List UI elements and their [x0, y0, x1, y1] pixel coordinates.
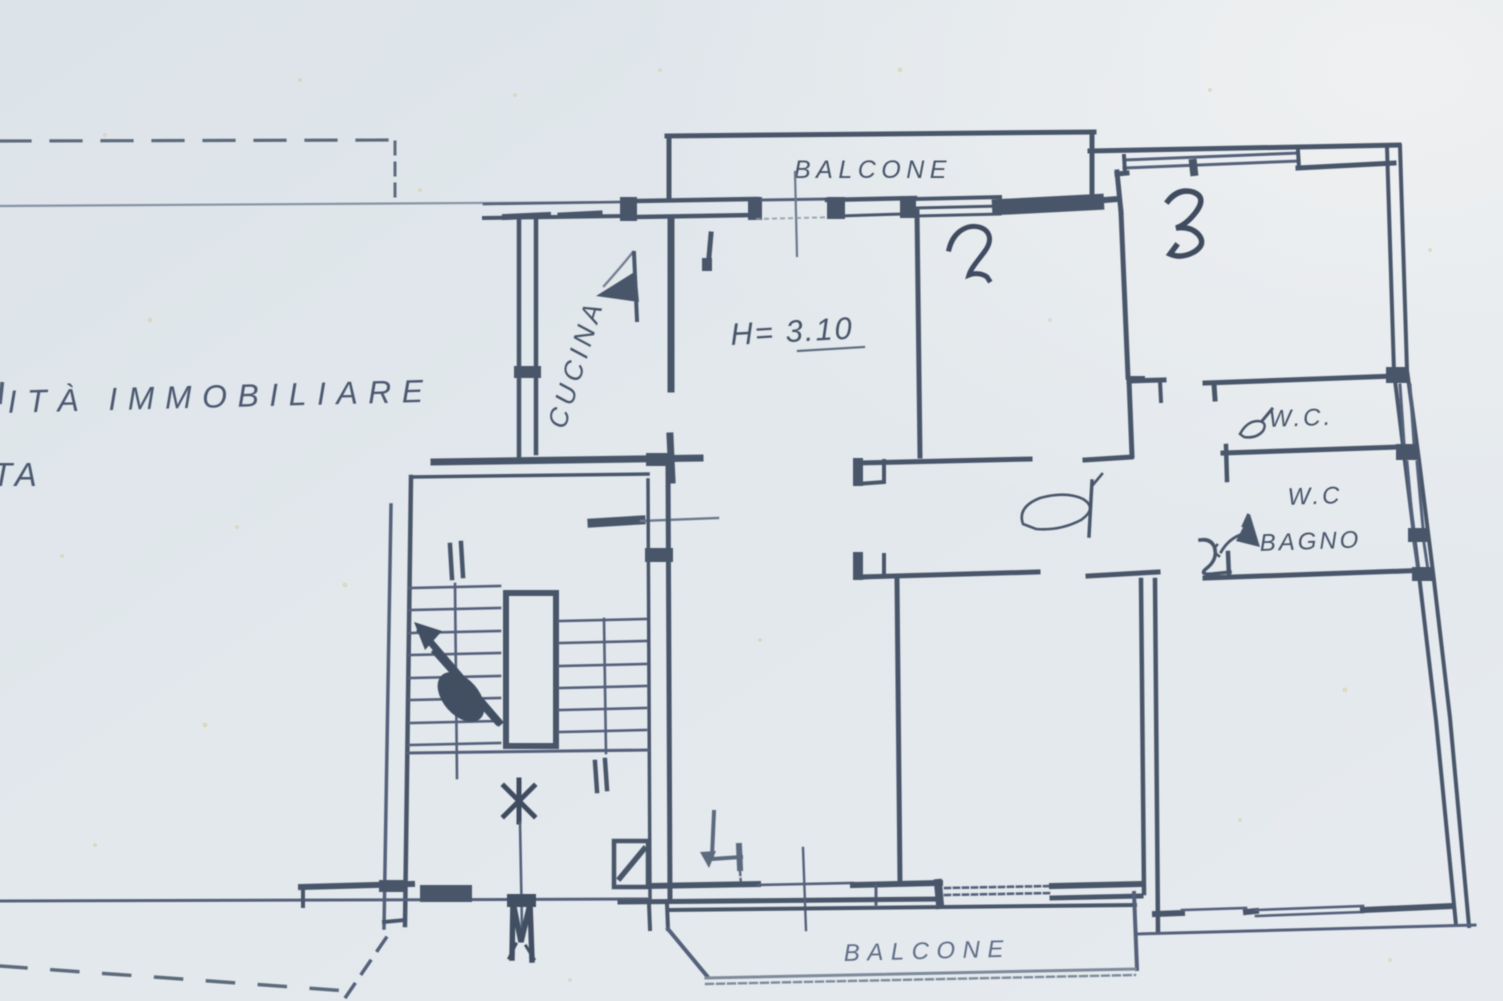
- svg-text:BALCONE: BALCONE: [794, 156, 952, 184]
- svg-text:W.C.: W.C.: [1268, 404, 1333, 433]
- svg-text:H= 3.10: H= 3.10: [730, 311, 855, 352]
- svg-text:TA: TA: [0, 456, 42, 493]
- svg-text:BAGNO: BAGNO: [1259, 526, 1362, 557]
- svg-text:BALCONE: BALCONE: [843, 936, 1011, 967]
- svg-text:W.C: W.C: [1287, 482, 1343, 511]
